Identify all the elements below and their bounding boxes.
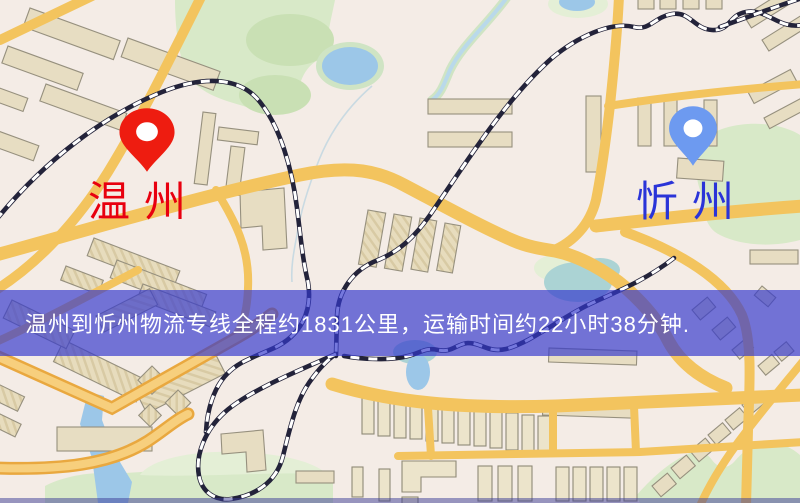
map-background — [0, 0, 800, 503]
origin-label: 温州 — [88, 181, 200, 223]
route-info-text: 温州到忻州物流专线全程约1831公里，运输时间约22小时38分钟. — [25, 307, 690, 339]
origin-pin-icon — [117, 106, 177, 179]
bottom-strip — [0, 498, 800, 503]
route-info-banner: 温州到忻州物流专线全程约1831公里，运输时间约22小时38分钟. — [0, 290, 800, 356]
destination-pin-icon — [667, 104, 719, 173]
map-image: 温州 忻州 温州到忻州物流专线全程约1831公里，运输时间约22小时38分钟. — [0, 0, 800, 503]
destination-label: 忻州 — [636, 181, 748, 223]
